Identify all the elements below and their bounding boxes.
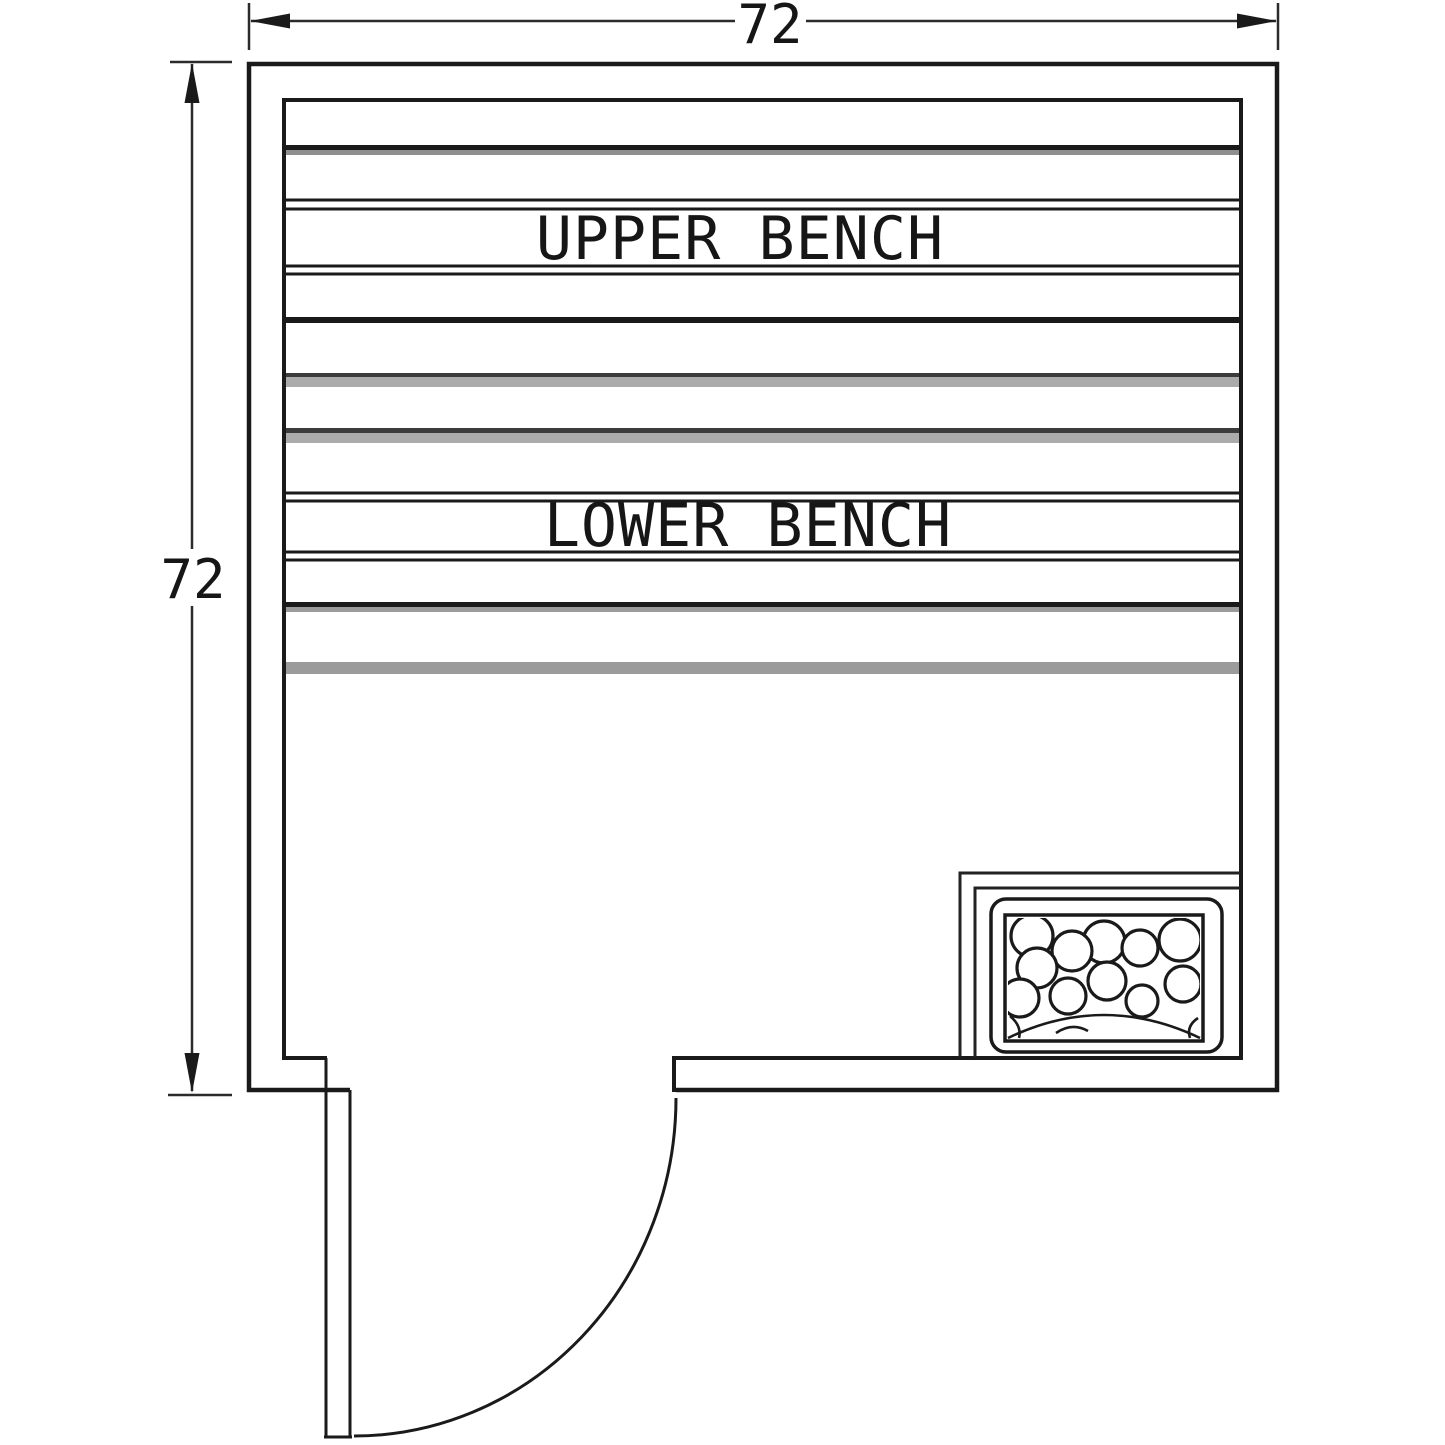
heater-rock [1159,919,1201,961]
top-dimension: 72 [249,0,1278,56]
upper-bench-slat-edge [286,145,1239,150]
bench-apron-face [286,433,1239,443]
arrowhead-right [1237,14,1277,29]
bench-apron-edge [286,373,1239,377]
bench-apron-face [286,377,1239,387]
left-dimension-value: 72 [160,548,225,611]
arrowhead-left [250,14,290,29]
heater-rock [1050,978,1086,1014]
sauna-floor-plan: 72 72 UPPER BENCH LOWER BE [0,0,1445,1445]
door [324,1057,676,1437]
floor-plan-svg: 72 72 UPPER BENCH LOWER BE [0,0,1445,1445]
heater [960,873,1240,1057]
upper-bench-slat-shadow [286,150,1239,155]
arrowhead-down [185,1053,200,1093]
door-swing-arc [354,1098,676,1436]
lower-bench-slat-edge [286,602,1239,607]
top-dimension-value: 72 [737,0,802,56]
heater-rock [1122,930,1158,966]
heater-rock [1165,966,1201,1002]
benches: UPPER BENCH LOWER BENCH [286,145,1239,674]
bench-apron-edge [286,428,1239,433]
lower-bench-front-face [286,662,1239,674]
upper-bench-label: UPPER BENCH [536,204,944,274]
lower-bench-slat-shadow [286,607,1239,612]
heater-rock [1088,962,1126,1000]
arrowhead-up [185,63,200,103]
heater-rock [1126,985,1158,1017]
upper-bench-front-edge [286,317,1239,323]
left-dimension: 72 [160,62,232,1095]
